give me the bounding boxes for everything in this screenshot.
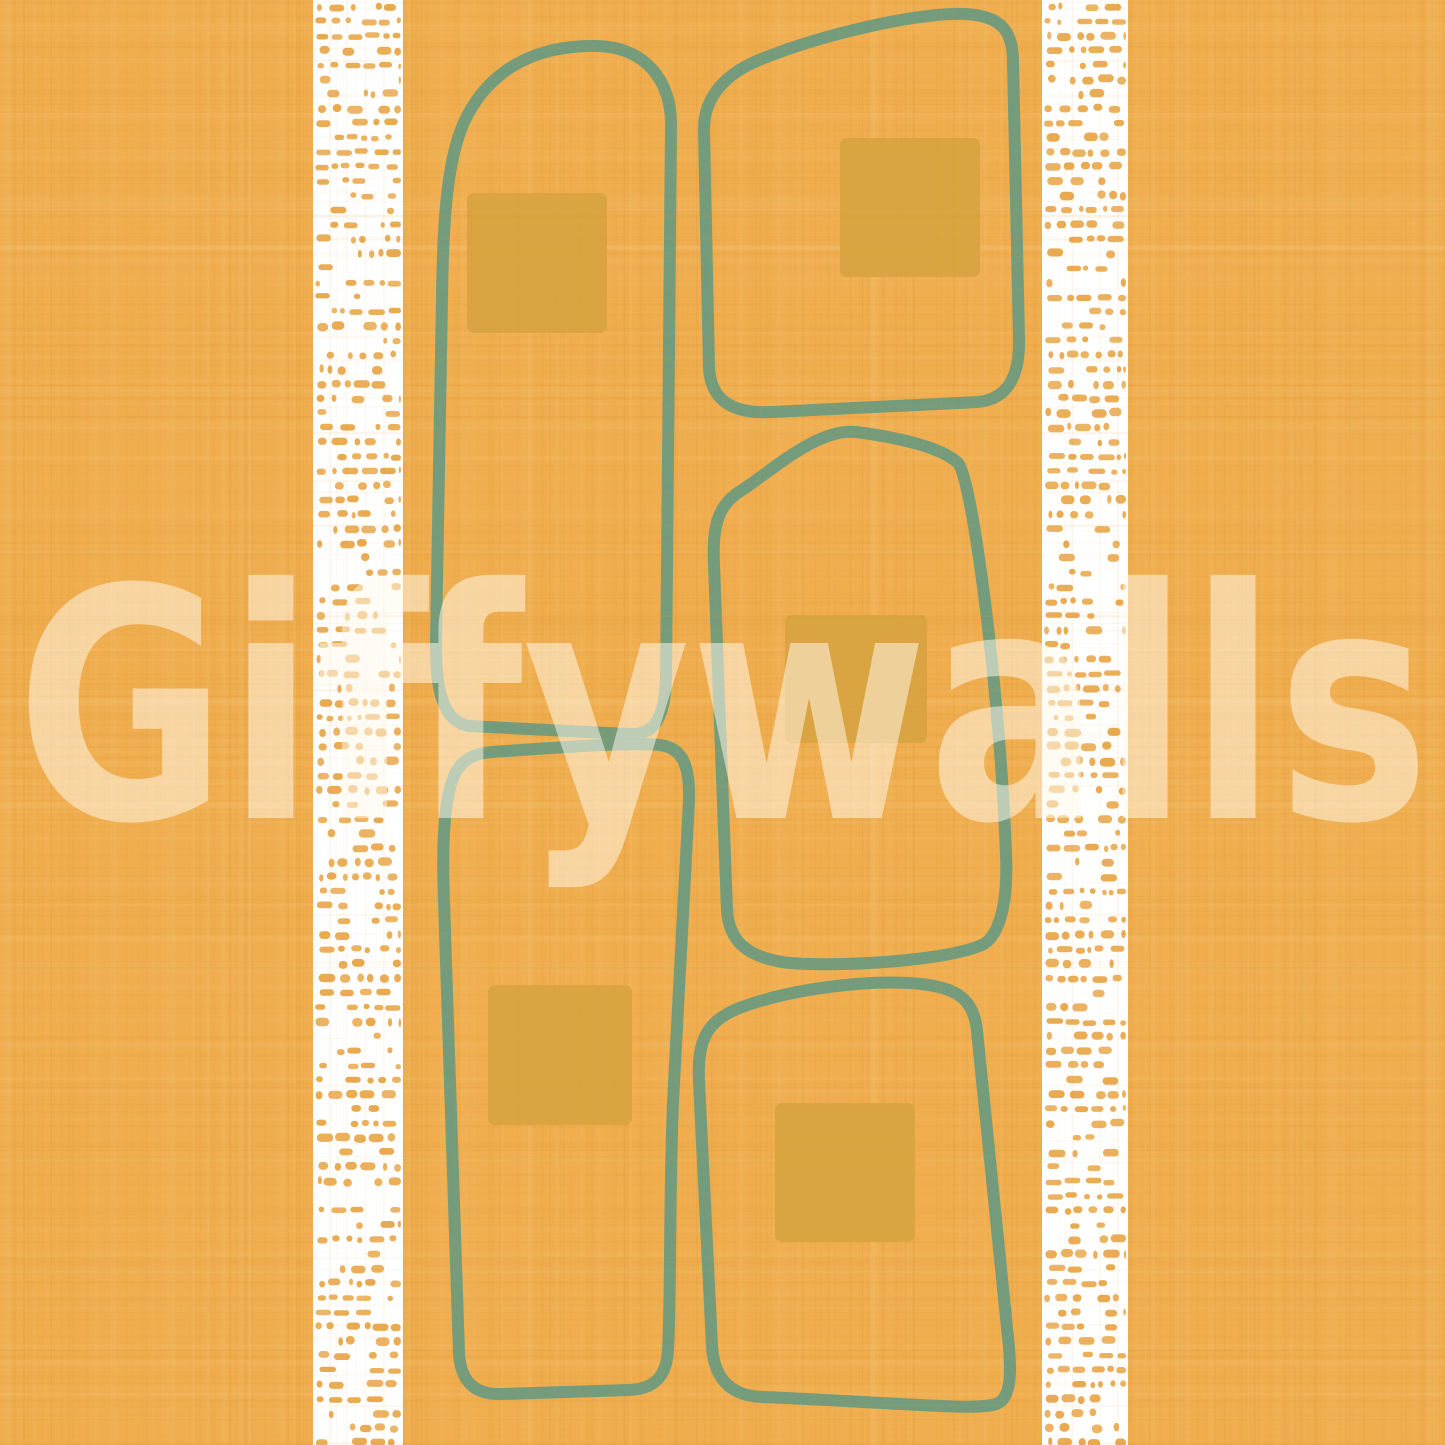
stripe-dash	[345, 380, 352, 388]
stripe-dash	[1073, 1135, 1081, 1140]
stripe-dash	[387, 1296, 393, 1301]
stripe-dash	[399, 496, 402, 503]
stripe-dash	[320, 46, 330, 54]
stripe-dash	[1062, 932, 1070, 940]
stripe-dash	[392, 1410, 401, 1418]
stripe-dash	[1047, 1163, 1059, 1169]
grain-line	[0, 1269, 1445, 1271]
stripe-dash	[373, 1121, 379, 1127]
stripe-dash	[1048, 1194, 1064, 1199]
pattern-svg: Giffywalls	[0, 0, 1445, 1445]
stripe-dash	[1103, 1149, 1119, 1157]
grain-line	[0, 1281, 1445, 1282]
stripe-dash	[347, 1048, 361, 1054]
stripe-dash	[396, 438, 401, 445]
grain-line	[0, 1405, 1445, 1407]
stripe-dash	[388, 1018, 392, 1027]
stripe-dash	[1059, 352, 1064, 359]
stripe-dash	[384, 118, 397, 125]
stripe-dash	[1048, 425, 1065, 433]
stripe-dash	[387, 1047, 392, 1053]
stripe-dash	[316, 281, 321, 287]
grain-line	[0, 1324, 1445, 1325]
grain-line	[0, 1038, 1445, 1039]
stripe-dash	[1081, 482, 1097, 490]
stripe-dash	[1101, 930, 1114, 938]
stripe-dash	[388, 424, 401, 430]
stripe-dash	[1095, 266, 1107, 271]
stripe-dash	[399, 396, 401, 403]
stripe-dash	[319, 1367, 336, 1372]
stripe-dash	[1111, 470, 1117, 475]
grain-line	[0, 256, 1445, 257]
grain-line	[0, 361, 1445, 362]
stripe-dash	[1048, 511, 1052, 518]
stripe-dash	[1103, 366, 1110, 372]
stripe-dash	[317, 1396, 324, 1402]
stripe-dash	[364, 1004, 370, 1009]
grain-line	[0, 1012, 1445, 1013]
stripe-dash	[1075, 930, 1085, 938]
stripe-dash	[335, 1163, 341, 1171]
stripe-dash	[370, 1368, 385, 1373]
stripe-dash	[1109, 337, 1122, 343]
stripe-dash	[1048, 381, 1062, 389]
stripe-dash	[366, 453, 377, 459]
stripe-dash	[1108, 350, 1116, 357]
stripe-dash	[1045, 1424, 1054, 1433]
grain-line	[0, 1337, 1445, 1338]
stripe-dash	[1095, 19, 1109, 25]
stripe-dash	[316, 1120, 326, 1126]
stripe-dash	[391, 455, 401, 461]
stripe-dash	[1083, 265, 1088, 270]
stripe-dash	[1061, 207, 1072, 213]
grain-line	[0, 289, 1445, 290]
stripe-dash	[351, 1121, 359, 1127]
stripe-dash	[1068, 120, 1083, 126]
stripe-dash	[1058, 394, 1068, 401]
grain-line	[0, 149, 1445, 151]
grain-line	[0, 480, 1445, 482]
grain-line	[0, 236, 1445, 238]
stripe-dash	[369, 250, 374, 258]
stripe-dash	[348, 352, 353, 359]
stripe-dash	[1105, 309, 1113, 316]
grain-line	[0, 1384, 1445, 1385]
stripe-dash	[393, 33, 401, 39]
stripe-dash	[389, 308, 401, 314]
stripe-dash	[352, 453, 361, 459]
stripe-dash	[1083, 1020, 1097, 1026]
stripe-dash	[320, 424, 333, 430]
stripe-dash	[1047, 1368, 1054, 1374]
stripe-dash	[387, 208, 394, 215]
stripe-dash	[1073, 1294, 1082, 1302]
stripe-dash	[365, 438, 376, 445]
stripe-dash	[390, 1352, 399, 1359]
stripe-dash	[1123, 1309, 1126, 1316]
grain-line	[0, 60, 1445, 62]
stripe-dash	[1046, 1395, 1059, 1403]
wallpaper-artwork: Giffywalls	[0, 0, 1445, 1445]
stripe-dash	[1045, 408, 1051, 417]
stripe-dash	[385, 134, 392, 139]
stripe-dash	[356, 1296, 371, 1301]
stripe-dash	[373, 119, 379, 126]
grain-line	[0, 1305, 1445, 1307]
stripe-dash	[375, 902, 384, 909]
stripe-dash	[368, 1251, 381, 1258]
stripe-dash	[1080, 901, 1093, 909]
stripe-dash	[1076, 295, 1091, 301]
stripe-dash	[1121, 917, 1126, 923]
stripe-dash	[1077, 1323, 1085, 1329]
grain-line	[0, 8, 1445, 10]
stripe-dash	[1059, 1423, 1069, 1432]
stripe-dash	[319, 931, 330, 939]
stripe-dash	[1046, 1061, 1062, 1068]
stripe-dash	[396, 947, 401, 953]
stripe-dash	[362, 468, 378, 474]
stripe-dash	[1109, 408, 1122, 417]
stripe-dash	[1081, 351, 1090, 358]
stripe-dash	[318, 438, 327, 445]
stripe-dash	[318, 105, 326, 113]
stripe-dash	[1123, 62, 1126, 69]
stripe-dash	[1075, 1106, 1089, 1112]
stripe-dash	[361, 1063, 375, 1068]
stripe-dash	[317, 381, 326, 389]
stripe-dash	[1080, 63, 1086, 69]
stripe-dash	[317, 409, 326, 415]
stripe-dash	[1085, 511, 1094, 518]
grain-line	[0, 466, 1445, 467]
stripe-dash	[1107, 1193, 1123, 1198]
stripe-dash	[1103, 1077, 1119, 1084]
grain-line	[0, 492, 1445, 494]
stripe-dash	[1088, 1206, 1097, 1213]
stripe-dash	[1107, 495, 1112, 504]
stripe-dash	[317, 1237, 327, 1243]
stripe-dash	[1077, 19, 1092, 25]
grain-line	[0, 336, 1445, 338]
stripe-dash	[1047, 133, 1060, 142]
stripe-dash	[1123, 32, 1126, 40]
stripe-dash	[374, 1005, 383, 1010]
stripe-dash	[374, 1033, 381, 1039]
stripe-dash	[1079, 322, 1093, 328]
stripe-dash	[1120, 1020, 1126, 1026]
stripe-dash	[1046, 1048, 1056, 1055]
stripe-dash	[395, 322, 401, 331]
stripe-dash-row	[1046, 1003, 1088, 1012]
stripe-dash	[394, 106, 401, 114]
stripe-dash	[1090, 1408, 1097, 1416]
stripe-dash	[316, 150, 331, 156]
stripe-dash	[1065, 916, 1076, 922]
stripe-dash	[398, 931, 401, 939]
stripe-dash	[1073, 1206, 1082, 1213]
stripe-dash	[1045, 902, 1052, 910]
stripe-dash	[317, 4, 322, 11]
stripe-dash	[390, 1207, 400, 1213]
stripe-dash	[1079, 917, 1089, 923]
stripe-dash	[368, 309, 385, 315]
grain-line	[0, 1156, 1445, 1158]
stripe-dash	[1109, 46, 1122, 53]
stripe-dash	[1088, 150, 1094, 157]
stripe-dash	[354, 294, 361, 299]
stripe-dash	[373, 482, 380, 490]
stripe-dash	[1048, 367, 1064, 373]
stripe-dash	[385, 411, 400, 417]
grain-line	[0, 1253, 1445, 1254]
stripe-dash	[317, 323, 328, 332]
grain-line	[0, 451, 1445, 452]
stripe-dash	[1058, 1366, 1070, 1372]
stripe-dash	[1079, 1337, 1095, 1345]
stripe-dash	[1045, 975, 1053, 982]
grain-line	[0, 1257, 1445, 1259]
stripe-dash	[1045, 917, 1052, 923]
stripe-dash	[362, 19, 377, 25]
stripe-dash	[1089, 396, 1100, 403]
stripe-dash	[1047, 1018, 1064, 1024]
stripe-dash	[1085, 1134, 1094, 1139]
stripe-dash	[1091, 1382, 1096, 1388]
stripe-dash	[1048, 1353, 1062, 1358]
stripe-dash	[1075, 481, 1079, 489]
stripe-dash-row	[368, 1251, 381, 1258]
stripe-dash	[388, 1369, 401, 1374]
grain-line	[0, 359, 1445, 361]
stripe-dash	[1077, 32, 1084, 40]
stripe-dash	[366, 1018, 376, 1027]
stripe-dash	[1061, 1106, 1068, 1112]
stripe-dash	[1103, 1206, 1113, 1213]
stripe-dash	[374, 1178, 382, 1186]
stripe-dash	[1076, 948, 1085, 954]
grain-line	[0, 1359, 1445, 1360]
stripe-dash	[392, 1077, 401, 1083]
stripe-dash	[1049, 453, 1065, 459]
grain-line	[0, 964, 1445, 965]
stripe-dash	[1123, 1105, 1126, 1111]
stripe-dash	[1080, 495, 1091, 504]
stripe-dash	[350, 1423, 356, 1430]
stripe-dash	[1057, 20, 1061, 26]
stripe-dash	[318, 1351, 329, 1358]
stripe-dash	[1046, 1207, 1059, 1214]
stripe-dash	[1086, 366, 1098, 372]
grain-line	[0, 2, 1445, 4]
stripe-dash	[385, 1005, 401, 1010]
grain-line	[0, 397, 1445, 399]
stripe-dash	[1044, 18, 1050, 24]
stripe-dash	[356, 1310, 371, 1315]
stripe-dash	[1046, 1180, 1062, 1186]
stripe-dash	[1091, 1106, 1103, 1112]
stripe-dash	[1044, 121, 1053, 127]
grain-line	[0, 95, 1445, 97]
stripe-dash	[394, 1164, 401, 1172]
stripe-dash	[317, 469, 326, 475]
stripe-dash	[1066, 1076, 1083, 1083]
stripe-dash	[1086, 33, 1094, 41]
stripe-dash	[390, 222, 401, 228]
stripe-dash	[394, 974, 401, 983]
stripe-dash	[1072, 1003, 1087, 1011]
stripe-dash	[352, 1018, 363, 1027]
stripe-dash	[1088, 469, 1105, 474]
stripe-dash	[1067, 266, 1082, 271]
stripe-dash	[1069, 439, 1082, 446]
stripe-dash	[1107, 1366, 1114, 1372]
grain-line	[0, 253, 1445, 254]
stripe-dash-row	[1046, 1061, 1105, 1068]
stripe-dash	[394, 1337, 402, 1346]
stripe-dash	[1080, 454, 1094, 460]
stripe-dash	[385, 235, 390, 242]
stripe-dash	[390, 351, 396, 358]
watermark-text: Giffywalls	[16, 522, 1430, 894]
stripe-dash	[399, 76, 401, 84]
stripe-dash	[1085, 207, 1096, 213]
stripe-dash	[1081, 1061, 1089, 1068]
stripe-dash	[1067, 423, 1071, 431]
grain-line	[0, 1395, 1445, 1396]
grain-line	[0, 201, 1445, 202]
stripe-dash	[1084, 1194, 1090, 1199]
stripe-dash	[384, 4, 396, 11]
stripe-dash	[1103, 1180, 1114, 1186]
stripe-dash	[367, 1380, 384, 1387]
stripe-dash	[1109, 162, 1122, 170]
stripe-dash	[1056, 120, 1065, 126]
stripe-dash	[318, 1176, 322, 1184]
stripe-dash	[1046, 279, 1052, 287]
stripe-dash	[1072, 150, 1086, 157]
stripe-dash	[395, 1064, 401, 1069]
stripe-dash	[1079, 206, 1084, 212]
stripe-dash	[1060, 1003, 1068, 1011]
stripe-dash	[357, 510, 370, 517]
grain-line	[0, 1085, 1445, 1087]
stripe-dash	[1060, 902, 1064, 910]
stripe-dash	[1047, 32, 1051, 40]
stripe-dash	[356, 1222, 363, 1229]
grain-line	[0, 961, 1445, 963]
stripe-dash	[318, 63, 325, 69]
grain-line	[0, 955, 1445, 956]
grain-line	[0, 164, 1445, 166]
stripe-dash	[347, 496, 359, 503]
stripe-dash	[317, 179, 329, 184]
stripe-dash	[393, 338, 401, 344]
stripe-dash	[367, 1396, 384, 1402]
stripe-dash-row	[374, 1033, 381, 1039]
stripe-dash	[367, 1078, 374, 1084]
stripe-dash	[319, 947, 334, 953]
stripe-dash	[385, 916, 398, 922]
stripe-dash	[376, 424, 381, 430]
stripe-dash	[1122, 511, 1126, 518]
stripe-dash	[350, 1207, 363, 1213]
grain-line	[0, 438, 1445, 439]
grain-line	[0, 136, 1445, 137]
stripe-dash	[319, 1063, 327, 1068]
stripe-dash	[389, 1177, 401, 1185]
stripe-dash	[1055, 1411, 1064, 1419]
stripe-dash	[1093, 381, 1099, 389]
stripe-dash	[388, 281, 401, 287]
stripe-dash	[1121, 1206, 1127, 1213]
grain-line	[0, 190, 1445, 191]
grain-line	[0, 227, 1445, 228]
stripe-dash	[1046, 1120, 1055, 1128]
grain-line	[0, 1159, 1445, 1160]
stripe-dash	[399, 467, 401, 473]
stripe-dash	[380, 1221, 394, 1228]
stripe-dash	[1045, 1105, 1057, 1111]
stripe-dash	[1055, 1294, 1067, 1302]
stripe-dash	[389, 1235, 396, 1241]
stripe-dash	[1121, 278, 1126, 286]
stripe-dash	[319, 1207, 325, 1213]
stripe-dash	[1103, 206, 1108, 212]
grain-line	[0, 914, 1445, 916]
stripe-dash	[1087, 947, 1091, 953]
stripe-dash	[315, 1322, 321, 1329]
stripe-dash	[320, 76, 331, 84]
stripe-dash	[1075, 424, 1091, 432]
stripe-dash	[398, 1221, 401, 1228]
grain-line	[0, 967, 1445, 969]
stripe-dash	[371, 91, 376, 98]
stripe-dash	[373, 352, 383, 359]
stripe-dash	[369, 1352, 377, 1359]
grain-line	[0, 139, 1445, 140]
grain-line	[0, 963, 1445, 964]
stripe-dash	[386, 904, 391, 911]
stripe-dash	[397, 17, 402, 23]
stripe-dash	[347, 1323, 361, 1330]
stripe-dash	[1065, 1208, 1072, 1215]
grain-line	[0, 1140, 1445, 1141]
grain-line	[0, 78, 1445, 79]
stripe-dash	[379, 62, 392, 68]
stripe-dash	[1103, 423, 1109, 431]
grain-line	[0, 1162, 1445, 1164]
stripe-dash	[1045, 206, 1056, 212]
stripe-dash	[319, 364, 323, 373]
stripe-dash	[1057, 511, 1064, 518]
stripe-dash	[1045, 1338, 1051, 1346]
stripe-dash	[1100, 150, 1109, 157]
stripe-dash	[1123, 366, 1126, 372]
stripe-dash	[1044, 105, 1052, 112]
stripe-dash	[391, 510, 396, 517]
stripe-dash	[1048, 948, 1053, 954]
stripe-dash	[352, 178, 365, 183]
stripe-dash	[378, 249, 383, 257]
stripe-dash	[1077, 1047, 1092, 1054]
stripe-dash	[373, 1410, 389, 1418]
stripe-dash	[337, 454, 347, 460]
stripe-dash	[1045, 482, 1059, 490]
stripe-dash	[1046, 1003, 1057, 1011]
